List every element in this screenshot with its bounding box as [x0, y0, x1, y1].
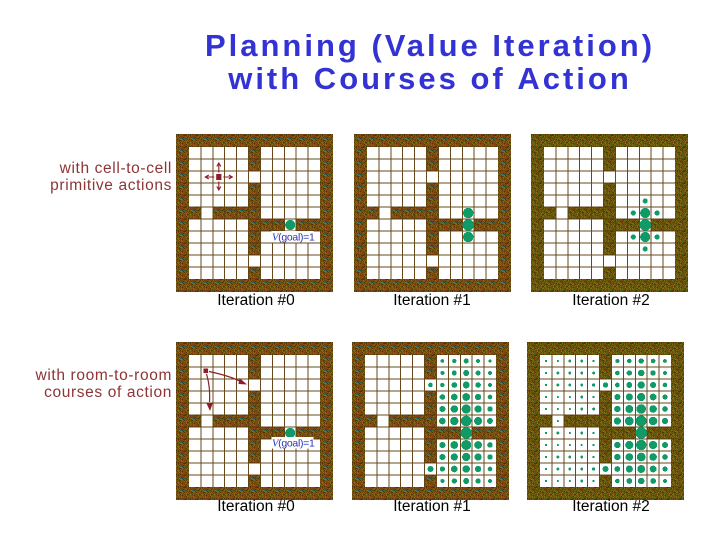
- svg-text:V(goal)=1: V(goal)=1: [272, 438, 315, 450]
- svg-text:V(goal)=1: V(goal)=1: [272, 232, 315, 244]
